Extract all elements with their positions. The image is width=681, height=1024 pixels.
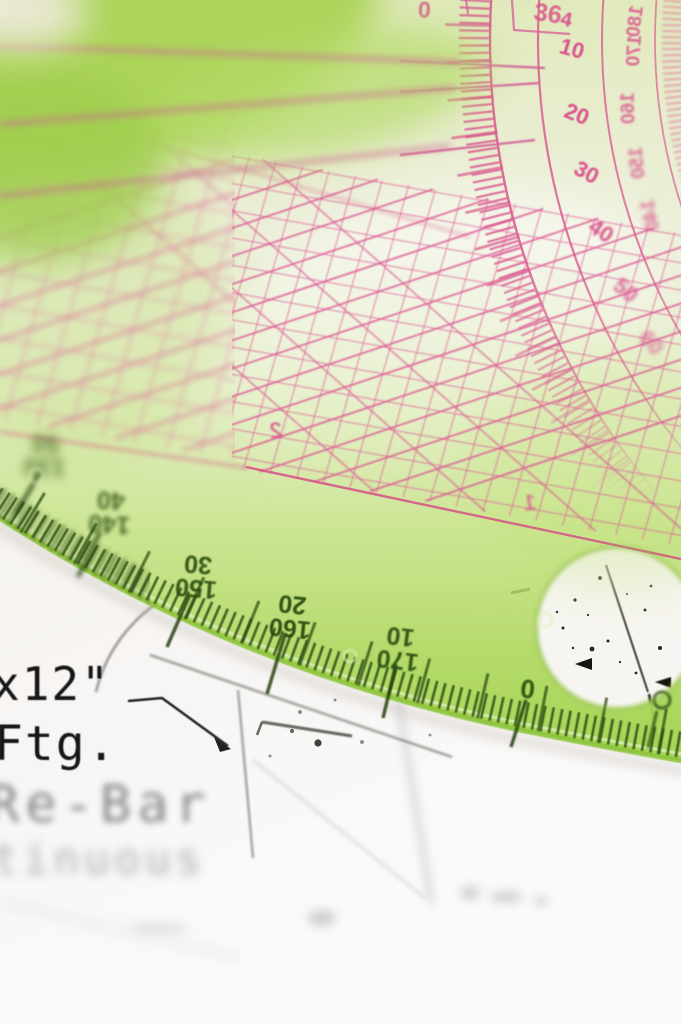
photo-canvas: x12" Ftg. Re-Bar tinuous <box>0 0 681 1024</box>
pink-outer-150: 150 <box>625 146 650 180</box>
pink-top-scale-0: 0 <box>417 0 432 23</box>
pink-outer-170: 170 <box>623 34 646 67</box>
drawing-text-tinuous: tinuous <box>0 834 205 885</box>
pink-outer-160: 160 <box>617 92 639 124</box>
svg-text:40: 40 <box>96 485 126 515</box>
svg-text:10: 10 <box>385 621 416 652</box>
svg-text:30: 30 <box>183 549 213 579</box>
drawing-text-rebar: Re-Bar <box>0 775 212 835</box>
photo-drafting-tools: x12" Ftg. Re-Bar tinuous <box>0 0 681 1024</box>
svg-text:20: 20 <box>277 589 308 620</box>
svg-text:50: 50 <box>31 428 60 457</box>
